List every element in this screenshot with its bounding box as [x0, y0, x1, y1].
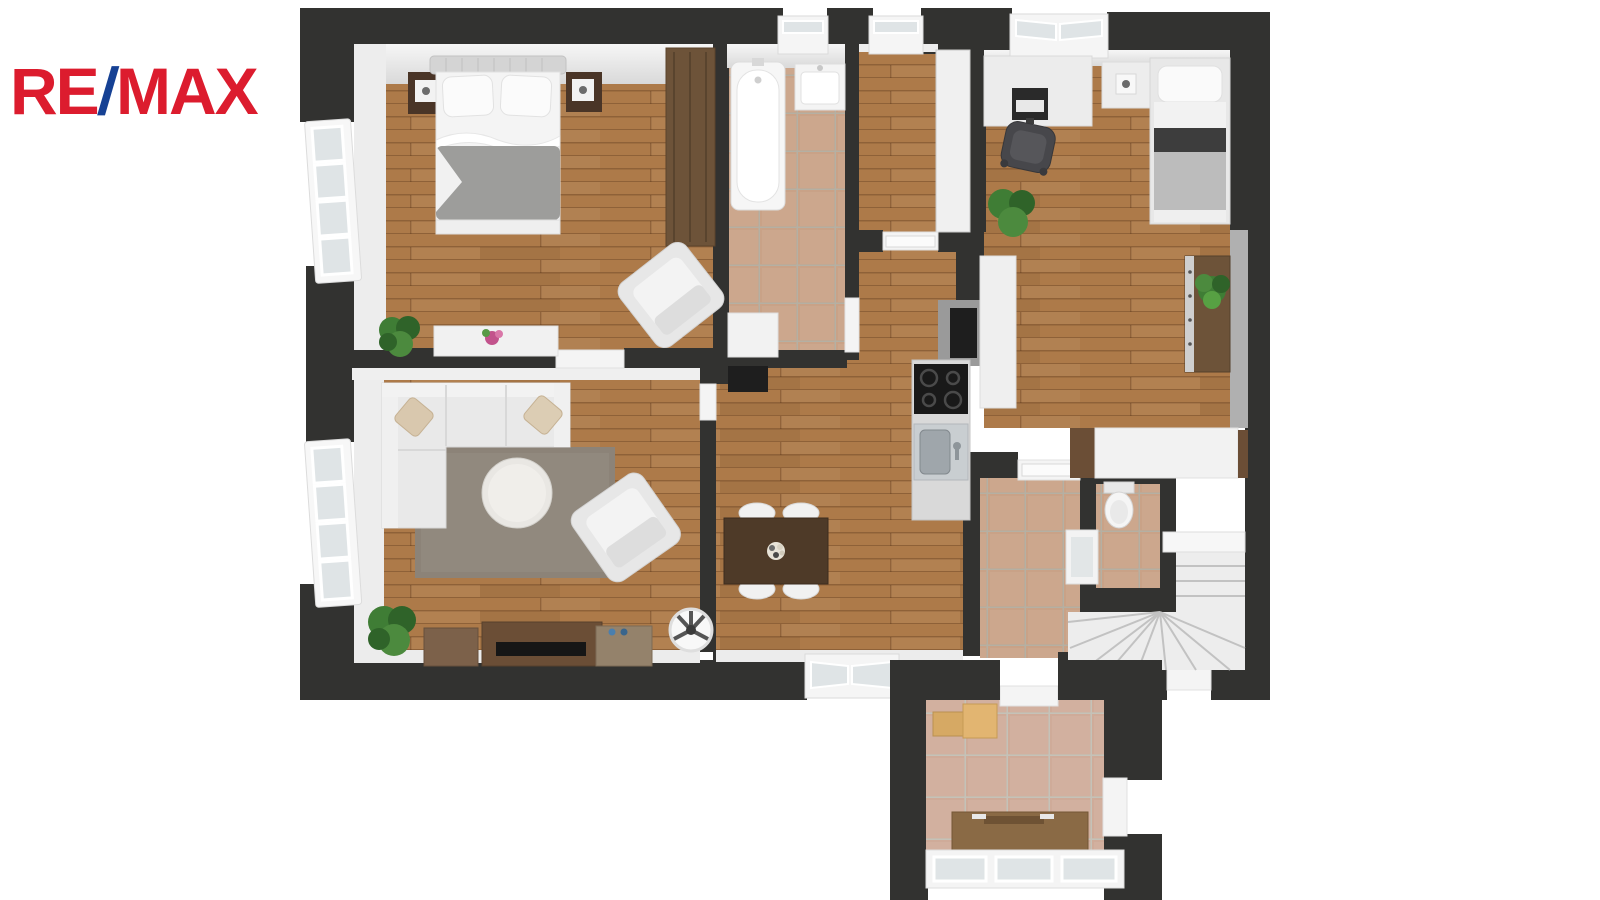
- bed-headboard: [430, 56, 566, 74]
- page: RE/MAX: [0, 0, 1600, 900]
- divider-south-face: [352, 368, 700, 380]
- floorplan-render: [0, 0, 1600, 900]
- double-bed: [430, 56, 566, 234]
- ceiling-fan: [670, 609, 712, 651]
- storage-bench: [952, 812, 1088, 850]
- side-cabinet-left: [424, 628, 478, 666]
- glazed-entrance-door: [926, 850, 1124, 888]
- bathtub-faucet: [752, 58, 764, 66]
- sink-faucet-neck: [955, 446, 959, 460]
- wall-living-kitchen-corner: [700, 348, 729, 384]
- hall-open-door: [886, 236, 935, 247]
- hall-wardrobe-body: [1095, 428, 1238, 478]
- cooktop: [914, 364, 968, 414]
- bathroom-window: [778, 16, 828, 54]
- bedroom-left-face: [354, 44, 386, 350]
- vent-shaft: [950, 308, 977, 358]
- sofa-back: [382, 383, 570, 397]
- washbasin-faucet: [817, 65, 823, 71]
- bed-footboard: [436, 220, 560, 234]
- kids-pillow: [1158, 66, 1222, 102]
- monitor-screen: [1016, 100, 1044, 112]
- hall-wardrobe: [1070, 428, 1248, 478]
- vestibule-side-door-leaf: [1103, 778, 1127, 836]
- wall-top-4: [1107, 12, 1232, 56]
- vestibule-wall-topright: [1058, 660, 1162, 700]
- wall-wc-bottom: [1080, 588, 1176, 614]
- kids-sideboard: [1185, 256, 1230, 372]
- kids-right-face: [1230, 230, 1248, 428]
- wall-hall-door-left: [845, 230, 883, 252]
- toilet-tank: [1104, 482, 1134, 493]
- wall-left-1: [300, 8, 354, 122]
- bed-pillow-right: [500, 75, 552, 118]
- toilet-seat: [1110, 500, 1128, 524]
- hall-wardrobe-right-end: [1238, 430, 1248, 478]
- dark-doormat: [728, 366, 768, 392]
- hall-window: [869, 16, 923, 54]
- vestibule-threshold: [1000, 686, 1058, 706]
- kids-footboard: [1154, 210, 1226, 222]
- bathroom-cabinet: [728, 313, 778, 357]
- kitchen-window: [805, 654, 899, 698]
- bathtub-drain: [755, 77, 762, 84]
- bed-pillow-left: [442, 75, 494, 118]
- wall-left-2: [306, 266, 354, 442]
- wall-right-2: [1245, 428, 1270, 700]
- kids-blanket: [1154, 152, 1226, 212]
- wall-hall-door-right: [938, 230, 984, 252]
- living-window: [304, 439, 361, 608]
- stairs-landing: [1163, 532, 1245, 552]
- lower-hallway-floor: [980, 476, 1080, 658]
- lowerhall-open-door: [1022, 464, 1076, 476]
- hall-wardrobe-left-end: [1070, 428, 1097, 478]
- kids-sheet: [1154, 102, 1226, 130]
- vestibule-wall-bottomright: [1122, 854, 1162, 900]
- single-bed: [1150, 58, 1230, 224]
- sink-basin: [920, 430, 950, 474]
- wc-washbasin-bowl: [1071, 537, 1093, 577]
- kids-tall-cabinet: [980, 256, 1016, 408]
- bedroom-living-threshold: [556, 350, 624, 368]
- bedroom-window: [304, 119, 361, 284]
- tv: [496, 642, 586, 656]
- vestibule-wall-bottomleft: [890, 854, 928, 900]
- kids-window: [1010, 14, 1108, 58]
- bathtub-basin: [737, 70, 779, 202]
- bathroom-washbasin-bowl: [801, 72, 839, 104]
- living-kitchen-door: [700, 384, 716, 420]
- vestibule-wall-topleft: [890, 660, 1000, 700]
- vestibule-wall-right-1: [1104, 698, 1162, 780]
- kids-blanket-stripe: [1154, 128, 1226, 152]
- hall-built-in-closet: [936, 50, 970, 232]
- bathroom-door: [845, 298, 859, 352]
- upper-hallway-floor: [859, 48, 938, 232]
